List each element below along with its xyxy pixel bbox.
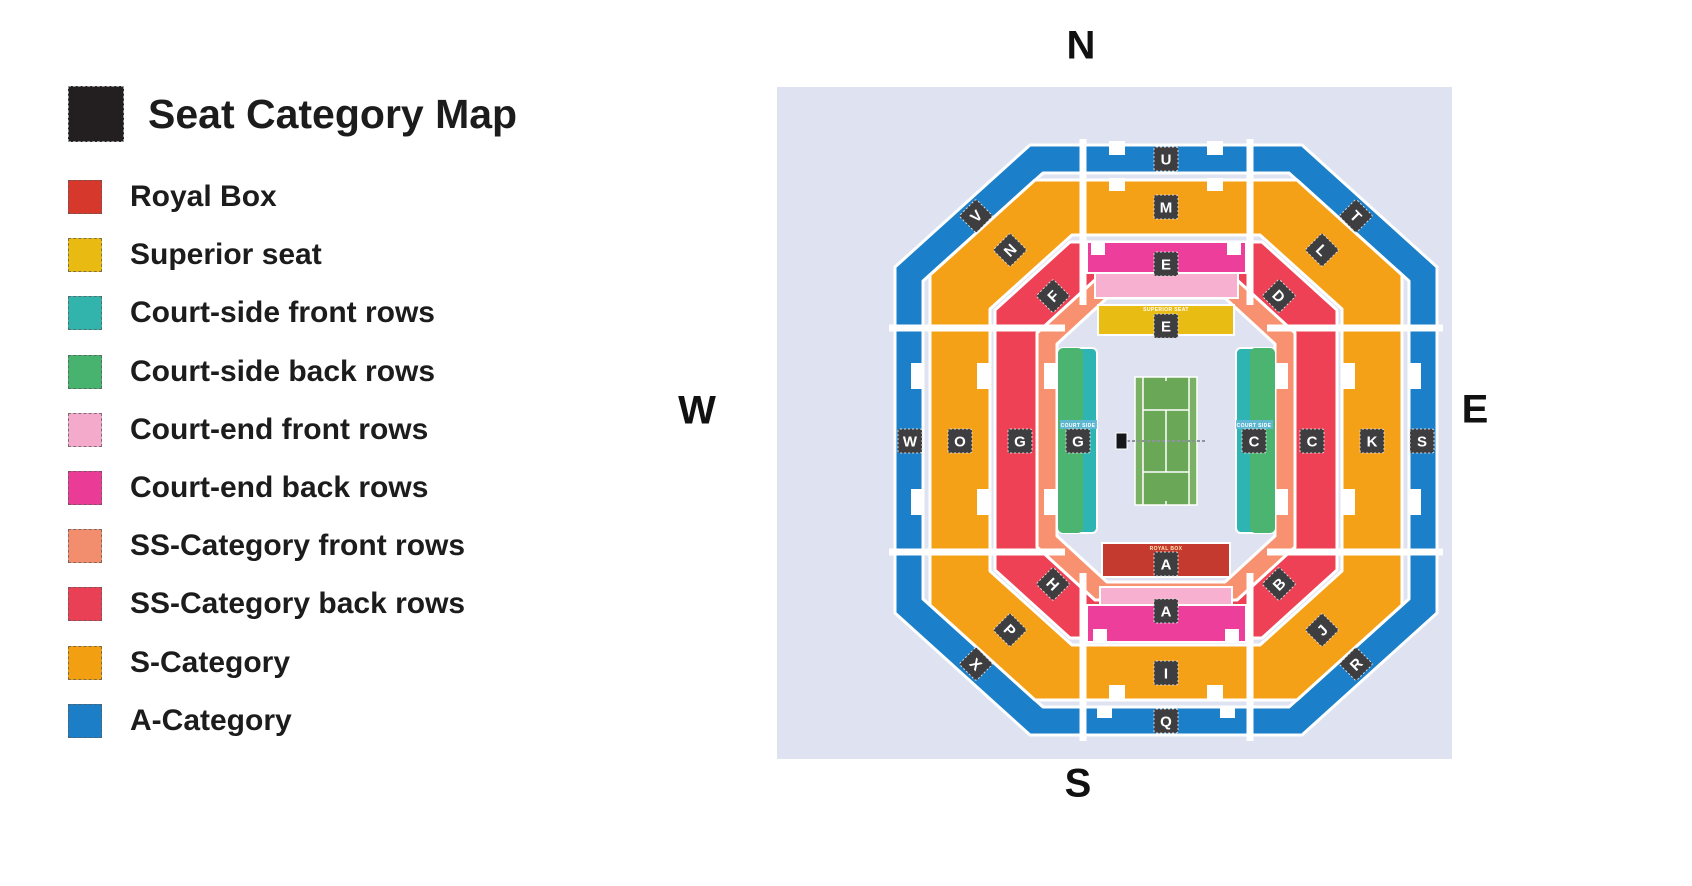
legend-item-swatch	[68, 413, 102, 447]
legend-item-swatch	[68, 296, 102, 330]
legend-item-label: Court-side back rows	[130, 355, 435, 389]
legend-item-label: SS-Category front rows	[130, 529, 465, 563]
section-label-g-court-side[interactable]: G	[1066, 429, 1090, 453]
svg-text:A: A	[1161, 604, 1172, 621]
svg-text:COURT SIDE: COURT SIDE	[1237, 423, 1272, 429]
section-label-e-court-end[interactable]: E	[1154, 252, 1178, 276]
section-label-c-court-side[interactable]: C	[1242, 429, 1266, 453]
section-label-m[interactable]: M	[1154, 195, 1178, 219]
svg-text:G: G	[1014, 434, 1026, 451]
legend-item-label: Royal Box	[130, 180, 277, 214]
section-label-o[interactable]: O	[948, 429, 972, 453]
compass-south: S	[1065, 762, 1092, 807]
legend-item-label: Court-side front rows	[130, 296, 435, 330]
legend-item-label: Court-end front rows	[130, 413, 428, 447]
court-side-annotation-left: COURT SIDE	[1060, 420, 1097, 429]
compass-west: W	[678, 389, 716, 434]
section-label-e-superior[interactable]: E	[1154, 314, 1178, 338]
svg-text:M: M	[1160, 200, 1173, 217]
svg-text:O: O	[954, 434, 966, 451]
svg-text:G: G	[1072, 434, 1084, 451]
legend-item-swatch	[68, 704, 102, 738]
royal-box-annotation: ROYAL BOX	[1150, 546, 1183, 552]
svg-text:C: C	[1249, 434, 1260, 451]
section-label-u[interactable]: U	[1154, 147, 1178, 171]
legend-item-label: S-Category	[130, 646, 290, 680]
section-label-a-royal[interactable]: A	[1154, 552, 1178, 576]
umpire-chair-icon	[1116, 433, 1127, 449]
section-label-s[interactable]: S	[1410, 429, 1434, 453]
svg-text:U: U	[1161, 152, 1172, 169]
svg-text:E: E	[1161, 257, 1171, 274]
court-side-annotation-right: COURT SIDE	[1236, 420, 1273, 429]
legend-item-swatch	[68, 529, 102, 563]
section-court-end-front-north[interactable]	[1095, 273, 1238, 298]
svg-text:Q: Q	[1160, 714, 1172, 731]
section-label-a-court-end[interactable]: A	[1154, 599, 1178, 623]
stadium-map: SUPERIOR SEAT ROYAL BOX COURT SIDE COURT…	[777, 87, 1452, 759]
legend-item-label: Superior seat	[130, 238, 322, 272]
svg-text:COURT SIDE: COURT SIDE	[1061, 423, 1096, 429]
section-label-q[interactable]: Q	[1154, 709, 1178, 733]
legend-item-swatch	[68, 587, 102, 621]
section-label-k[interactable]: K	[1360, 429, 1384, 453]
compass-north: N	[1067, 24, 1096, 69]
legend-item-label: SS-Category back rows	[130, 587, 465, 621]
legend-item-label: Court-end back rows	[130, 471, 428, 505]
legend-item-label: A-Category	[130, 704, 292, 738]
svg-text:K: K	[1367, 434, 1378, 451]
legend-item-swatch	[68, 180, 102, 214]
compass-east: E	[1462, 388, 1489, 433]
superior-seat-annotation: SUPERIOR SEAT	[1143, 307, 1189, 313]
svg-text:W: W	[903, 434, 918, 451]
legend-item-swatch	[68, 471, 102, 505]
svg-text:I: I	[1164, 666, 1168, 683]
svg-text:S: S	[1417, 434, 1427, 451]
legend-title-swatch	[68, 86, 124, 142]
legend-item-swatch	[68, 238, 102, 272]
legend-item-swatch	[68, 646, 102, 680]
section-label-c-ss[interactable]: C	[1300, 429, 1324, 453]
legend-title: Seat Category Map	[148, 86, 517, 142]
legend-item-swatch	[68, 355, 102, 389]
svg-text:E: E	[1161, 319, 1171, 336]
section-label-i[interactable]: I	[1154, 661, 1178, 685]
section-label-w[interactable]: W	[898, 429, 922, 453]
svg-text:A: A	[1161, 557, 1172, 574]
section-label-g-ss[interactable]: G	[1008, 429, 1032, 453]
svg-text:C: C	[1307, 434, 1318, 451]
